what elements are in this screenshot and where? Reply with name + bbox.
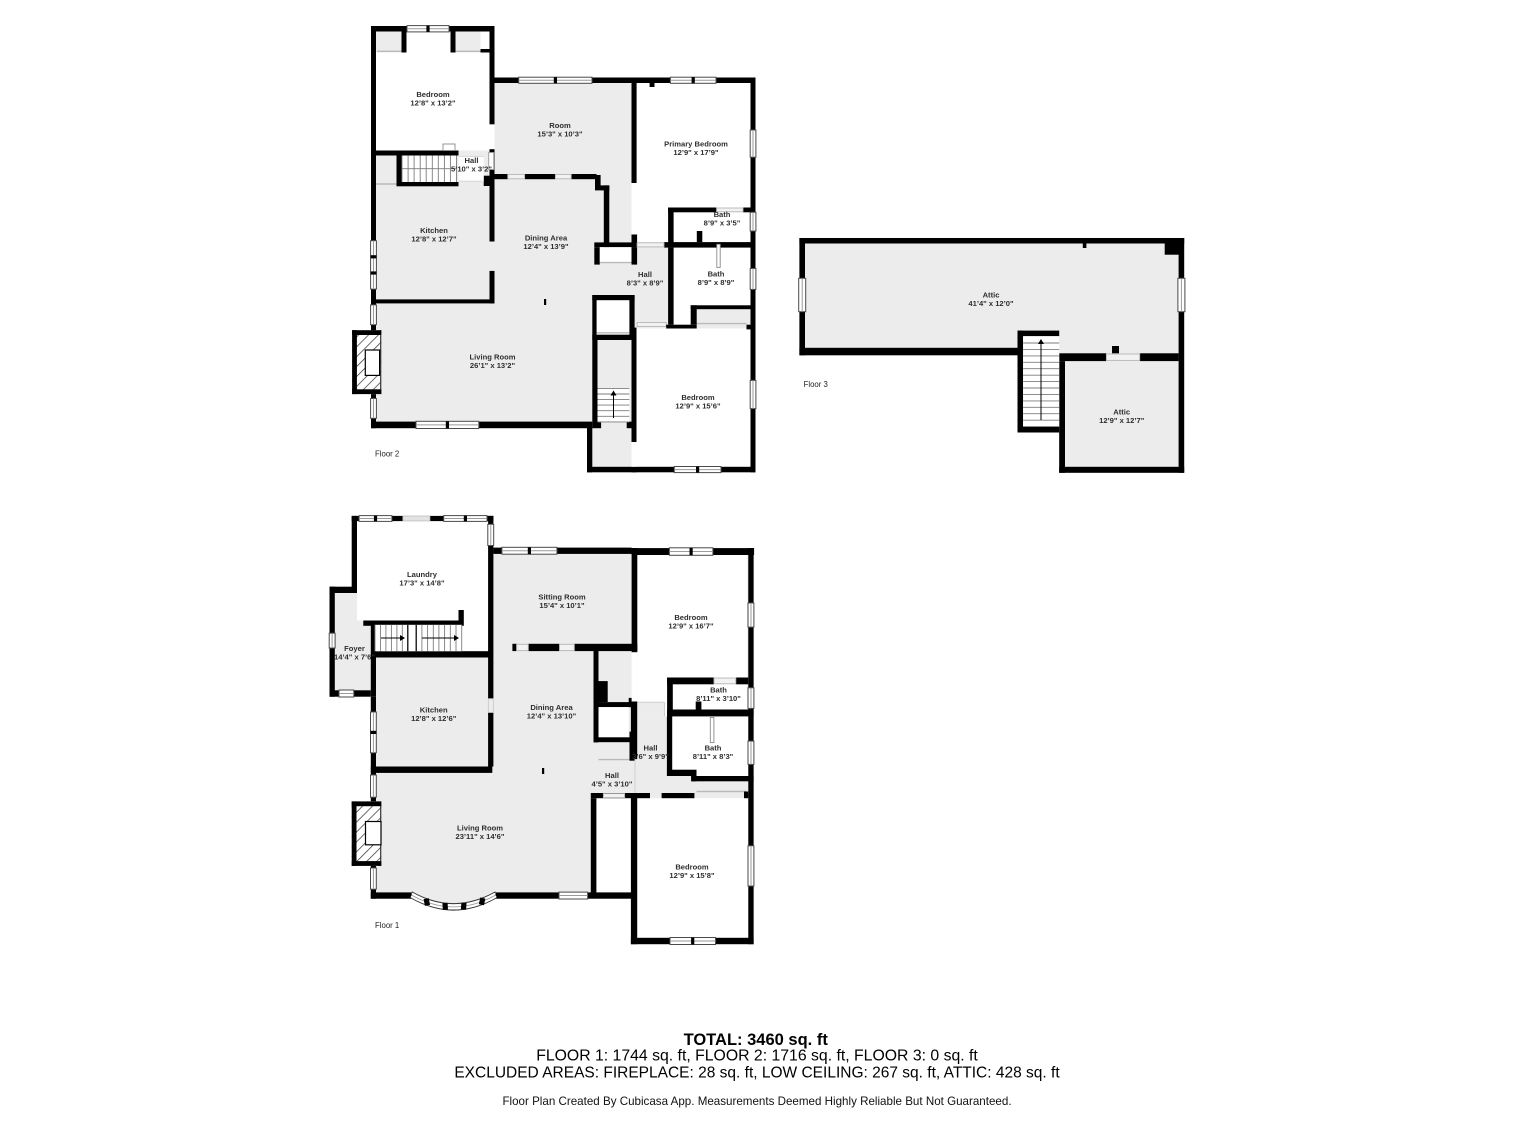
svg-text:12’4" x 13’9": 12’4" x 13’9" (523, 242, 569, 251)
svg-text:8’3" x 8’9": 8’3" x 8’9" (627, 278, 664, 287)
svg-text:12’9" x 17’9": 12’9" x 17’9" (673, 148, 719, 157)
svg-text:15’3" x 10’3": 15’3" x 10’3" (537, 129, 583, 138)
svg-text:3’6" x 9’9": 3’6" x 9’9" (632, 752, 669, 761)
svg-text:14’4" x 7’6": 14’4" x 7’6" (334, 652, 375, 661)
svg-text:Floor 1: Floor 1 (375, 921, 399, 930)
svg-text:EXCLUDED AREAS: FIREPLACE: 28: EXCLUDED AREAS: FIREPLACE: 28 sq. ft, LO… (454, 1065, 1060, 1082)
svg-text:12’8" x 13’2": 12’8" x 13’2" (410, 98, 456, 107)
svg-text:4’5" x 3’10": 4’5" x 3’10" (592, 779, 633, 788)
svg-text:12’8" x 12’6": 12’8" x 12’6" (411, 714, 457, 723)
svg-text:Floor 2: Floor 2 (375, 450, 399, 459)
svg-text:12’9" x 15’6": 12’9" x 15’6" (675, 401, 721, 410)
svg-text:17’3" x 14’8": 17’3" x 14’8" (399, 578, 445, 587)
svg-text:8’11" x 3’10": 8’11" x 3’10" (696, 694, 741, 703)
svg-text:12’9" x 15’8": 12’9" x 15’8" (669, 871, 715, 880)
svg-text:FLOOR 1: 1744 sq. ft, FLOOR 2:: FLOOR 1: 1744 sq. ft, FLOOR 2: 1716 sq. … (536, 1048, 978, 1065)
svg-text:15’4" x 10’1": 15’4" x 10’1" (539, 601, 585, 610)
svg-text:41’4" x 12’0": 41’4" x 12’0" (968, 299, 1014, 308)
svg-text:23’11" x 14’6": 23’11" x 14’6" (455, 832, 504, 841)
svg-text:Floor Plan Created By Cubicasa: Floor Plan Created By Cubicasa App. Meas… (502, 1095, 1011, 1108)
svg-text:12’9" x 12’7": 12’9" x 12’7" (1099, 416, 1145, 425)
svg-text:8’11" x 8’3": 8’11" x 8’3" (693, 752, 734, 761)
svg-text:12’4" x 13’10": 12’4" x 13’10" (527, 711, 577, 720)
svg-text:12’8" x 12’7": 12’8" x 12’7" (411, 234, 457, 243)
svg-text:TOTAL: 3460 sq. ft: TOTAL: 3460 sq. ft (684, 1031, 829, 1049)
svg-text:8’9" x 8’9": 8’9" x 8’9" (698, 278, 735, 287)
svg-text:5’10" x 3’2": 5’10" x 3’2" (451, 164, 492, 173)
svg-text:26’1" x 13’2": 26’1" x 13’2" (470, 361, 516, 370)
svg-text:Floor 3: Floor 3 (804, 380, 828, 389)
svg-text:12’9" x 16’7": 12’9" x 16’7" (668, 621, 714, 630)
svg-text:8’9" x 3’5": 8’9" x 3’5" (704, 218, 741, 227)
